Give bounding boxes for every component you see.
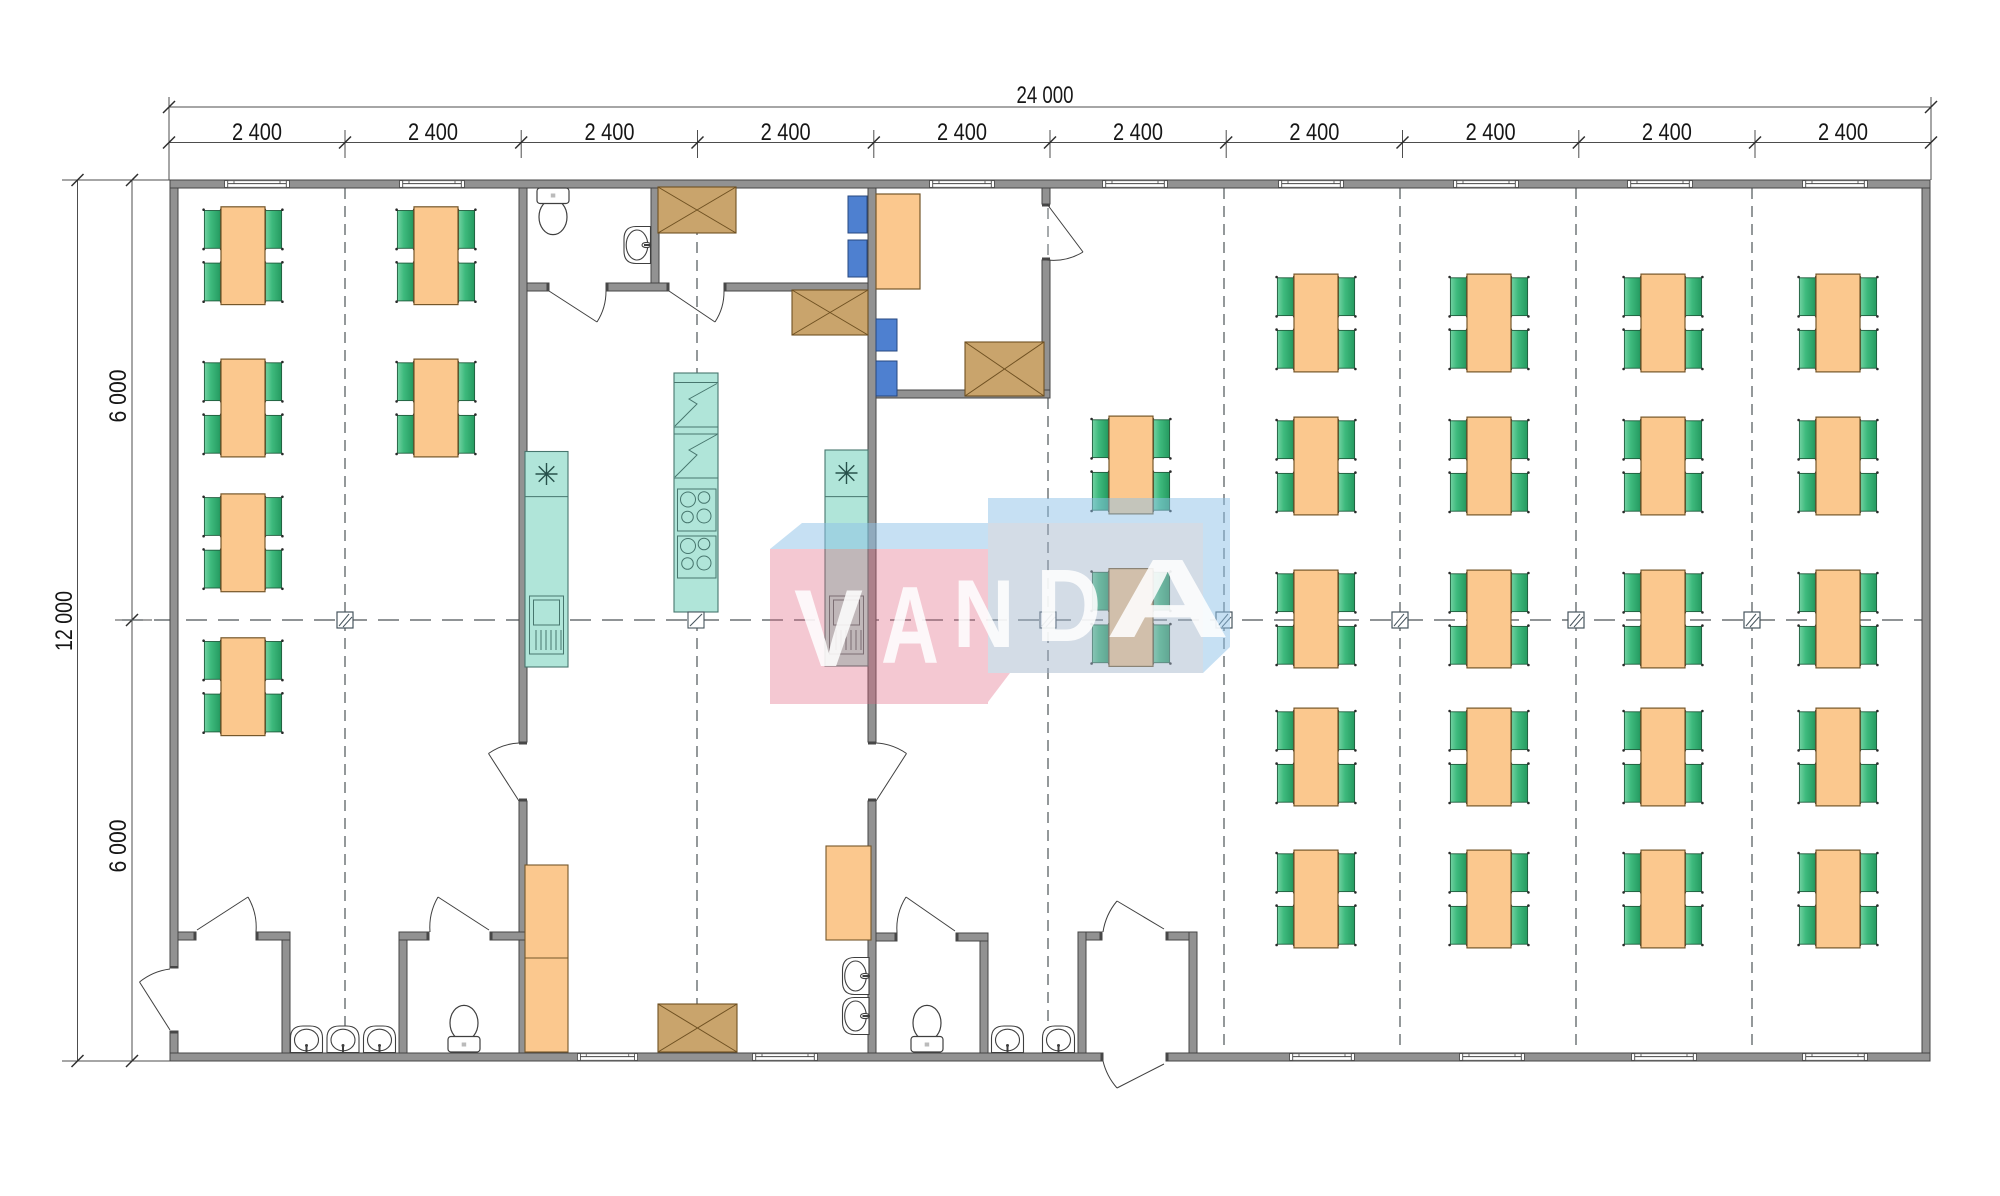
svg-text:2 400: 2 400 (585, 119, 635, 146)
svg-text:6 000: 6 000 (105, 820, 132, 873)
svg-text:2 400: 2 400 (1466, 119, 1516, 146)
svg-text:A: A (881, 565, 939, 687)
svg-text:N: N (953, 560, 1015, 668)
svg-text:2 400: 2 400 (761, 119, 811, 146)
svg-text:2 400: 2 400 (1289, 119, 1339, 146)
svg-text:6 000: 6 000 (105, 370, 132, 423)
svg-text:2 400: 2 400 (1642, 119, 1692, 146)
svg-text:24 000: 24 000 (1017, 82, 1074, 109)
svg-text:2 400: 2 400 (1818, 119, 1868, 146)
svg-text:2 400: 2 400 (408, 119, 458, 146)
svg-text:12 000: 12 000 (51, 591, 78, 651)
svg-text:2 400: 2 400 (232, 119, 282, 146)
svg-text:D: D (1036, 548, 1101, 664)
svg-text:2 400: 2 400 (1113, 119, 1163, 146)
svg-text:A: A (1105, 536, 1230, 661)
svg-text:2 400: 2 400 (937, 119, 987, 146)
svg-text:V: V (794, 566, 863, 690)
